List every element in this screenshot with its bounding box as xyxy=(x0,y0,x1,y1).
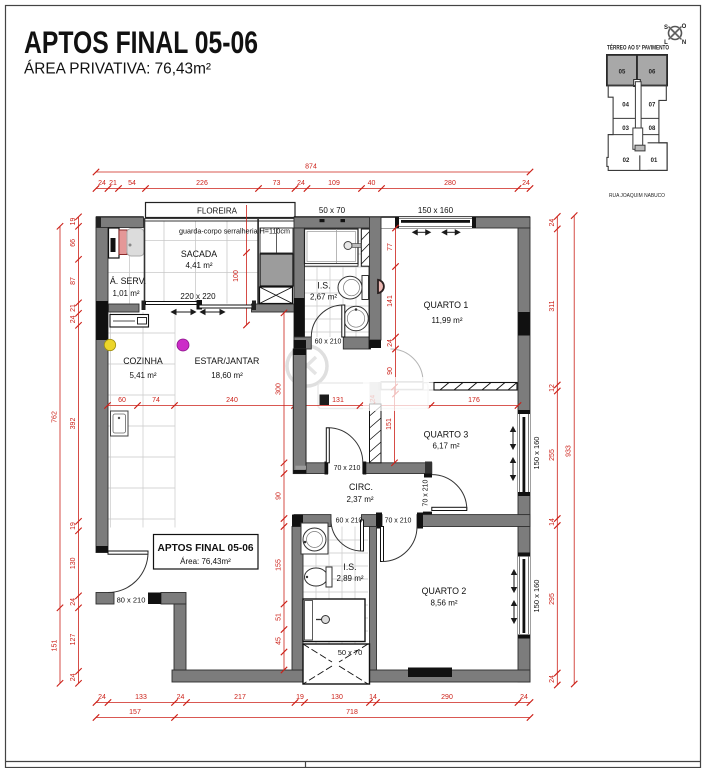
svg-text:300: 300 xyxy=(276,383,283,395)
svg-text:392: 392 xyxy=(70,418,77,430)
svg-text:74: 74 xyxy=(152,397,160,404)
svg-text:02: 02 xyxy=(623,158,630,164)
svg-text:14: 14 xyxy=(369,694,377,701)
svg-text:2,89 m²: 2,89 m² xyxy=(336,574,363,583)
svg-text:12: 12 xyxy=(549,384,556,392)
svg-text:TÉRREO AO 5° PAVIMENTO: TÉRREO AO 5° PAVIMENTO xyxy=(607,44,669,52)
svg-text:1,01 m²: 1,01 m² xyxy=(112,289,139,298)
svg-text:24: 24 xyxy=(549,219,556,227)
svg-text:04: 04 xyxy=(622,103,629,109)
svg-text:155: 155 xyxy=(276,559,283,571)
svg-text:54: 54 xyxy=(128,180,136,187)
svg-text:SACADA: SACADA xyxy=(181,249,217,259)
svg-text:150 x 160: 150 x 160 xyxy=(532,437,541,470)
svg-text:RUA JOAQUIM NABUCO: RUA JOAQUIM NABUCO xyxy=(609,193,665,199)
svg-text:24: 24 xyxy=(522,180,530,187)
svg-text:50 x 70: 50 x 70 xyxy=(319,206,346,215)
svg-text:60: 60 xyxy=(118,397,126,404)
svg-text:141: 141 xyxy=(387,295,394,307)
svg-text:21: 21 xyxy=(70,304,77,312)
svg-text:220 x 220: 220 x 220 xyxy=(180,292,216,301)
svg-text:14: 14 xyxy=(549,518,556,526)
svg-text:280: 280 xyxy=(444,180,456,187)
svg-text:311: 311 xyxy=(549,300,556,311)
svg-text:24: 24 xyxy=(98,694,106,701)
svg-text:5,41 m²: 5,41 m² xyxy=(129,371,156,380)
svg-text:90: 90 xyxy=(276,492,283,500)
svg-text:24: 24 xyxy=(70,315,77,323)
svg-text:718: 718 xyxy=(346,709,358,716)
svg-text:874: 874 xyxy=(305,164,317,171)
svg-text:150 x 160: 150 x 160 xyxy=(418,206,454,215)
svg-text:19: 19 xyxy=(296,694,304,701)
svg-text:FLOREIRA: FLOREIRA xyxy=(197,207,238,216)
svg-text:Área: 76,43m²: Área: 76,43m² xyxy=(180,557,231,566)
svg-text:933: 933 xyxy=(566,445,573,457)
svg-text:I.S.: I.S. xyxy=(343,562,356,572)
svg-text:I.S.: I.S. xyxy=(317,281,330,291)
svg-text:109: 109 xyxy=(328,180,340,187)
svg-text:157: 157 xyxy=(129,709,141,716)
svg-text:N: N xyxy=(682,40,686,46)
svg-text:131: 131 xyxy=(332,397,344,404)
svg-text:51: 51 xyxy=(276,613,283,621)
svg-text:40: 40 xyxy=(368,180,376,187)
svg-text:06: 06 xyxy=(649,70,656,76)
svg-text:73: 73 xyxy=(273,180,281,187)
svg-text:ÁREA PRIVATIVA: 76,43m²: ÁREA PRIVATIVA: 76,43m² xyxy=(24,61,211,78)
svg-text:ESTAR/JANTAR: ESTAR/JANTAR xyxy=(195,356,260,366)
svg-text:87: 87 xyxy=(70,277,77,285)
svg-text:151: 151 xyxy=(52,640,59,652)
svg-text:45: 45 xyxy=(276,637,283,645)
svg-text:50 x 70: 50 x 70 xyxy=(338,648,363,657)
svg-text:05: 05 xyxy=(619,70,626,76)
svg-text:4,41 m²: 4,41 m² xyxy=(185,261,212,270)
svg-text:24: 24 xyxy=(70,598,77,606)
svg-text:01: 01 xyxy=(651,158,658,164)
svg-text:2,67 m²: 2,67 m² xyxy=(310,293,337,302)
svg-text:130: 130 xyxy=(331,694,343,701)
svg-text:6,17 m²: 6,17 m² xyxy=(432,442,459,451)
svg-text:guarda-corpo serralheria H=110: guarda-corpo serralheria H=110cm xyxy=(179,227,290,236)
svg-text:130: 130 xyxy=(70,557,77,569)
svg-text:24: 24 xyxy=(70,673,77,681)
svg-text:217: 217 xyxy=(234,694,246,701)
svg-text:2,37 m²: 2,37 m² xyxy=(346,495,373,504)
svg-text:QUARTO 2: QUARTO 2 xyxy=(422,586,467,596)
svg-text:Á. SERV.: Á. SERV. xyxy=(110,276,146,286)
svg-text:O: O xyxy=(682,24,687,30)
svg-text:150 x 160: 150 x 160 xyxy=(532,580,541,613)
svg-text:255: 255 xyxy=(549,449,556,461)
svg-text:QUARTO 1: QUARTO 1 xyxy=(424,300,469,310)
svg-text:19: 19 xyxy=(70,218,77,226)
svg-text:176: 176 xyxy=(468,397,480,404)
svg-text:90: 90 xyxy=(387,367,394,375)
svg-text:127: 127 xyxy=(70,634,77,646)
svg-text:66: 66 xyxy=(70,239,77,247)
svg-text:24: 24 xyxy=(549,675,556,683)
svg-text:APTOS FINAL 05-06: APTOS FINAL 05-06 xyxy=(158,542,254,554)
svg-text:APTOS FINAL 05-06: APTOS FINAL 05-06 xyxy=(24,24,258,60)
svg-text:CIRC.: CIRC. xyxy=(349,482,373,492)
svg-text:70 x 210: 70 x 210 xyxy=(423,479,430,506)
svg-text:24: 24 xyxy=(98,180,106,187)
svg-text:24: 24 xyxy=(387,339,394,347)
svg-text:290: 290 xyxy=(441,694,453,701)
svg-text:762: 762 xyxy=(52,411,59,423)
svg-text:QUARTO 3: QUARTO 3 xyxy=(424,430,469,440)
svg-text:133: 133 xyxy=(135,694,147,701)
svg-text:18,60 m²: 18,60 m² xyxy=(211,371,243,380)
svg-text:70 x 210: 70 x 210 xyxy=(334,465,361,472)
svg-text:100: 100 xyxy=(233,270,240,282)
svg-text:24: 24 xyxy=(297,180,305,187)
svg-text:295: 295 xyxy=(549,593,556,605)
svg-text:60 x 210: 60 x 210 xyxy=(336,518,363,525)
svg-text:240: 240 xyxy=(226,397,238,404)
svg-text:24: 24 xyxy=(520,694,528,701)
svg-text:08: 08 xyxy=(649,126,656,132)
svg-text:151: 151 xyxy=(386,418,393,430)
svg-text:03: 03 xyxy=(622,126,629,132)
svg-text:S: S xyxy=(664,25,668,31)
svg-text:80 x 210: 80 x 210 xyxy=(117,596,146,605)
svg-text:11,99 m²: 11,99 m² xyxy=(432,316,463,325)
svg-text:07: 07 xyxy=(649,103,656,109)
svg-text:8,56 m²: 8,56 m² xyxy=(430,599,457,608)
svg-text:COZINHA: COZINHA xyxy=(123,356,163,366)
svg-text:77: 77 xyxy=(387,243,394,251)
svg-text:19: 19 xyxy=(70,522,77,530)
svg-text:24: 24 xyxy=(177,694,185,701)
svg-text:60 x 210: 60 x 210 xyxy=(315,339,342,346)
svg-text:226: 226 xyxy=(196,180,208,187)
svg-text:70 x 210: 70 x 210 xyxy=(385,518,412,525)
svg-text:21: 21 xyxy=(109,180,117,187)
